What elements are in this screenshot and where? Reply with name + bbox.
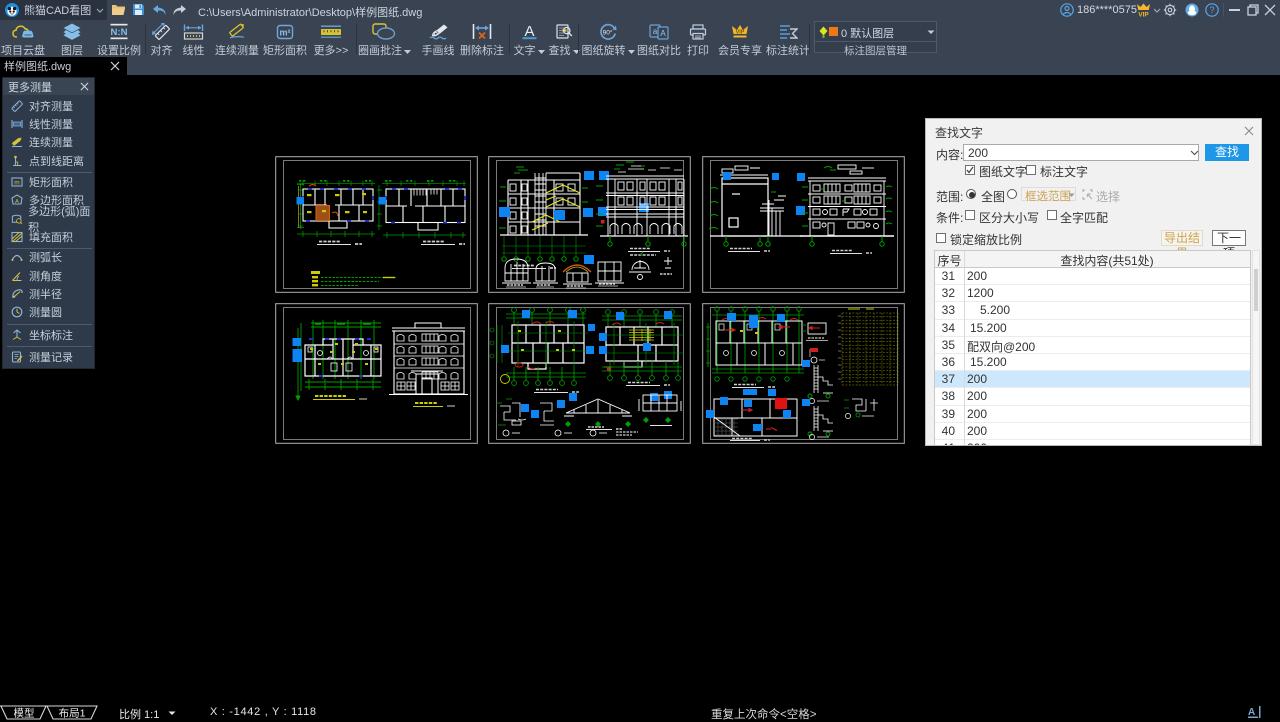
svg-text:N:N: N:N xyxy=(111,27,128,38)
svg-text:a: a xyxy=(653,27,658,36)
svg-text:A: A xyxy=(1248,707,1255,718)
svg-text:m²: m² xyxy=(280,27,291,37)
svg-text:m: m xyxy=(14,179,19,186)
svg-text:A: A xyxy=(660,29,666,38)
svg-text:?: ? xyxy=(1209,5,1214,15)
svg-text:布局1: 布局1 xyxy=(59,708,86,720)
svg-text:A: A xyxy=(15,199,19,205)
svg-text:VIP: VIP xyxy=(1138,12,1149,19)
svg-text:90°: 90° xyxy=(603,28,613,36)
svg-text:模型: 模型 xyxy=(14,707,35,720)
svg-text:VIP: VIP xyxy=(736,29,745,35)
